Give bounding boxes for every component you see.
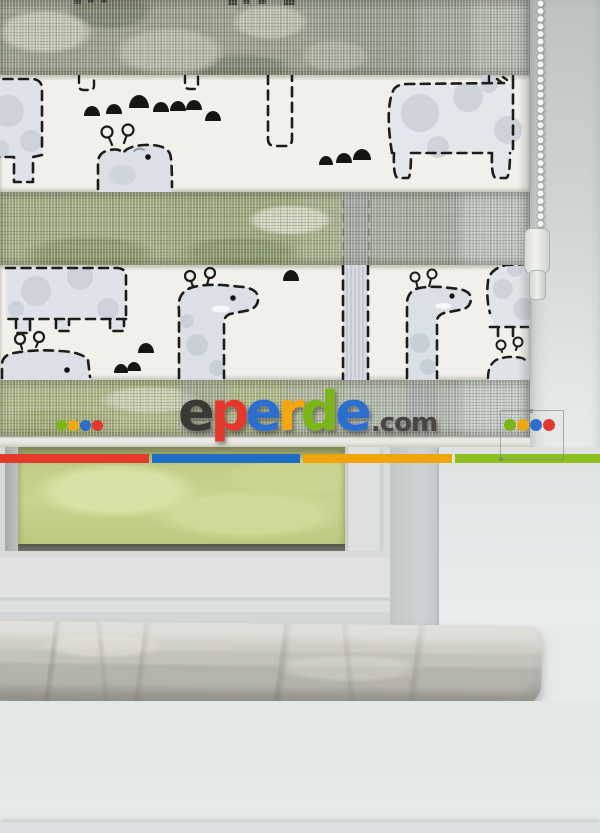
dot-red: [543, 419, 555, 431]
sheer-band-top: [0, 0, 530, 75]
brand-letter: e: [335, 386, 368, 438]
brand-letter: d: [301, 386, 336, 438]
brand-letter: r: [278, 386, 301, 438]
hippo-figure: [98, 125, 172, 193]
blind-edge-shadow: [518, 0, 530, 447]
blind-product-photo: e p e r d e .com: [0, 0, 600, 833]
dot-yellow: [68, 420, 79, 431]
watermark-dots-left: [56, 420, 103, 431]
marble-window-sill: [0, 621, 542, 706]
giraffe-figure-2: [407, 270, 471, 381]
dot-red: [92, 420, 103, 431]
brand-letter: e: [245, 386, 278, 438]
dot-green: [504, 419, 516, 431]
lower-wall: [0, 701, 600, 833]
brand-bar-blue: [152, 454, 300, 463]
dot-blue: [80, 420, 91, 431]
brand-letter: p: [211, 386, 246, 438]
window-reveal-wall: [390, 447, 439, 625]
watermark-selection-box: [500, 410, 564, 460]
spotted-animal-right: [389, 75, 522, 179]
dot-yellow: [517, 419, 529, 431]
brand-suffix: .com: [371, 410, 437, 436]
giraffe-neck-column: [343, 265, 368, 380]
hippo-figure-small: [2, 332, 90, 380]
eperde-logo: e p e r d e .com: [178, 386, 437, 438]
sheer-band-top-marks: [0, 0, 530, 75]
window-frame-bottom: [0, 551, 390, 625]
blind-chain: [536, 0, 545, 230]
brand-letter: e: [178, 386, 211, 438]
watermark-dots-right: [504, 419, 555, 431]
chain-connector-lower: [529, 270, 546, 300]
pattern-band-1-art: [0, 75, 530, 192]
giraffe-figure-1: [179, 268, 258, 380]
pattern-band-1: [0, 75, 530, 192]
spotted-cow-figure: [6, 265, 126, 333]
giraffe-legs-partial: [268, 75, 292, 146]
brand-bar-yellow: [303, 454, 452, 463]
pattern-band-2-art: [0, 265, 530, 380]
dot-blue: [530, 419, 542, 431]
sheer-band-middle-ghost: [0, 192, 530, 265]
spotted-animal-partial-left: [0, 79, 42, 182]
pattern-band-2: [0, 265, 530, 380]
dot-green: [56, 420, 67, 431]
chain-connector: [524, 228, 550, 274]
window-gasket: [18, 544, 345, 551]
floor-shadow-line: [0, 822, 600, 833]
brand-bar-red: [0, 454, 149, 463]
window-scene: [0, 447, 600, 625]
pattern-feet-notches: [79, 75, 198, 90]
wall-right-lower: [439, 447, 600, 625]
sheer-band-middle: [0, 192, 530, 265]
